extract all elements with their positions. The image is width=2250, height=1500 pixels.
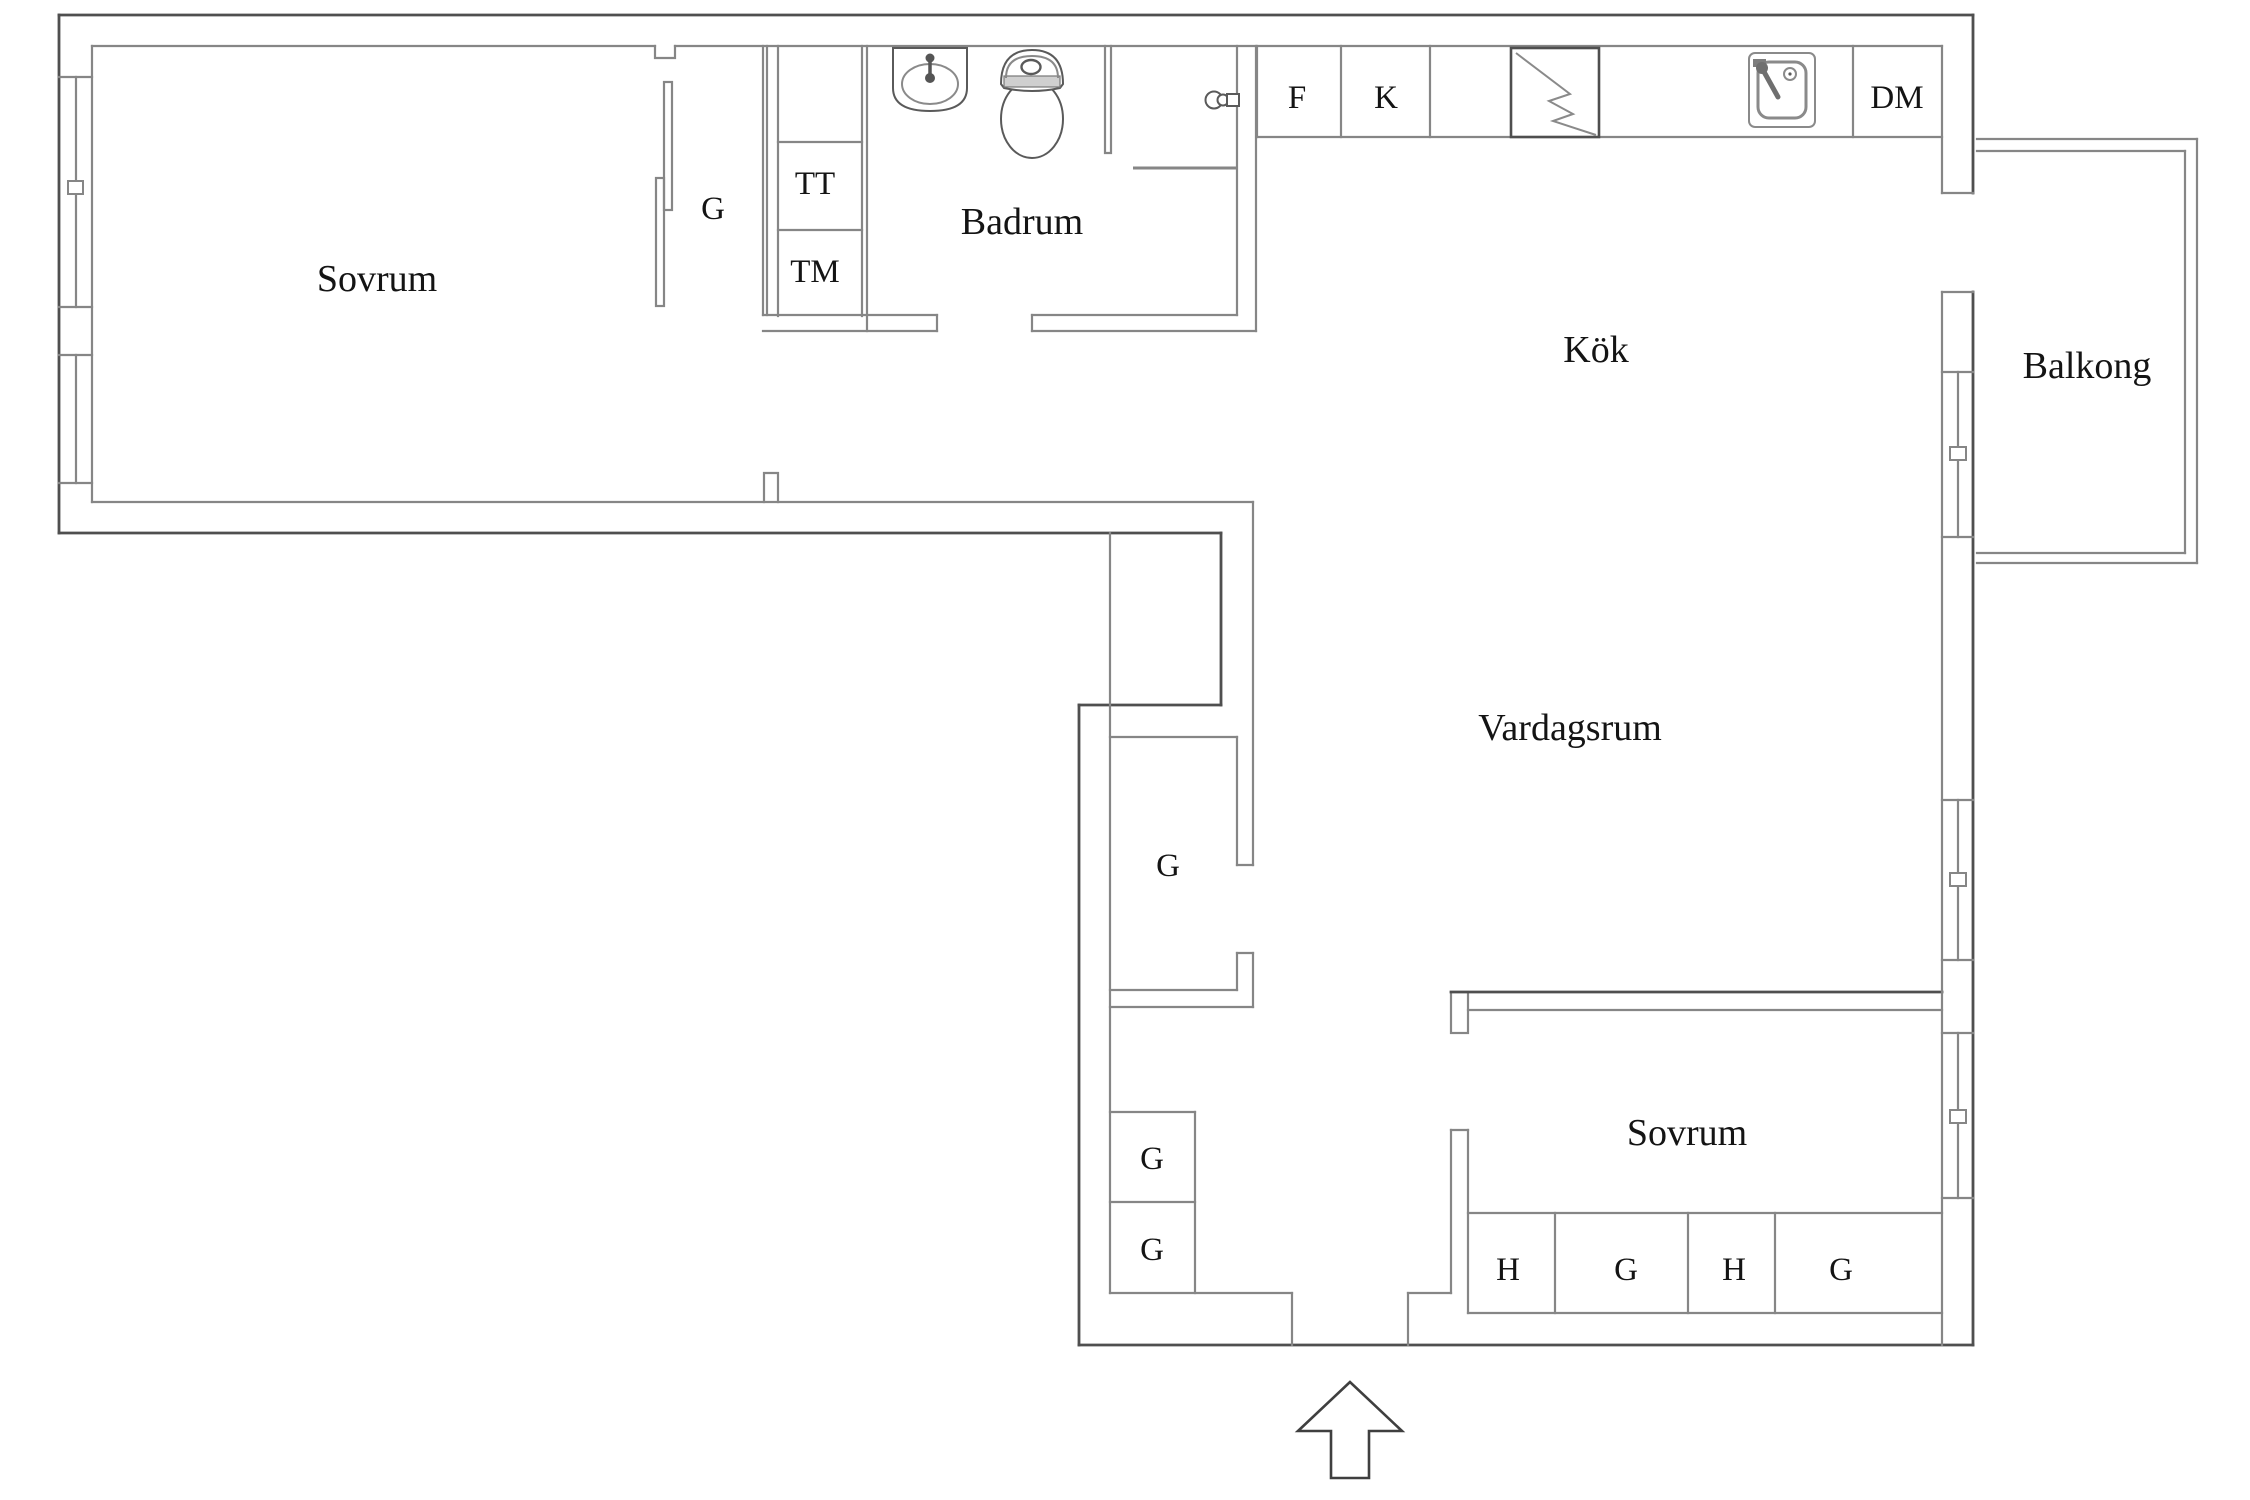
washer-label: TM [790,254,840,290]
kitchen-counter [1257,46,1942,137]
floor-plan-drawing: Sovrum G TT TM Badrum F K DM Kök Balkong… [0,0,2250,1500]
floor-plan-page: Sovrum G TT TM Badrum F K DM Kök Balkong… [0,0,2250,1500]
wardrobe-label: G [1156,848,1180,884]
shower-mixer-icon [1206,92,1240,109]
bedroom-door-jamb [1451,992,1468,1033]
labels: Sovrum G TT TM Badrum F K DM Kök Balkong… [317,80,2152,1288]
room-label-sovrum-second: Sovrum [1627,1112,1747,1154]
wardrobe-label: G [701,191,725,227]
window-tick [1950,1110,1966,1123]
shelf-label: H [1496,1252,1520,1288]
room-label-balkong: Balkong [2023,345,2152,387]
wardrobe-label: G [1140,1141,1164,1177]
stove-icon [1511,48,1599,137]
room-label-vardagsrum: Vardagsrum [1478,707,1662,749]
room-label-kok: Kök [1563,329,1628,371]
window-tick [1950,447,1966,460]
bathroom-sink-icon [893,48,967,111]
toilet-icon [1001,50,1063,158]
shower-partition [1105,46,1111,153]
window-tick [1950,873,1966,886]
kitchen-sink-icon [1749,53,1815,127]
shelf-label: H [1722,1252,1746,1288]
dryer-label: TT [795,166,835,202]
window-tick [68,181,83,194]
entrance-arrow-icon [1298,1382,1402,1478]
room-label-sovrum-main: Sovrum [317,258,437,300]
room-label-badrum: Badrum [961,201,1083,243]
sliding-door-panels [656,82,672,306]
freezer-label: F [1288,80,1306,116]
wardrobe-label: G [1829,1252,1853,1288]
fridge-label: K [1374,80,1398,116]
windows [59,77,1973,1198]
corridor-door-stub [764,473,778,502]
wardrobe-label: G [1140,1232,1164,1268]
dishwasher-label: DM [1870,80,1923,116]
wardrobe-label: G [1614,1252,1638,1288]
